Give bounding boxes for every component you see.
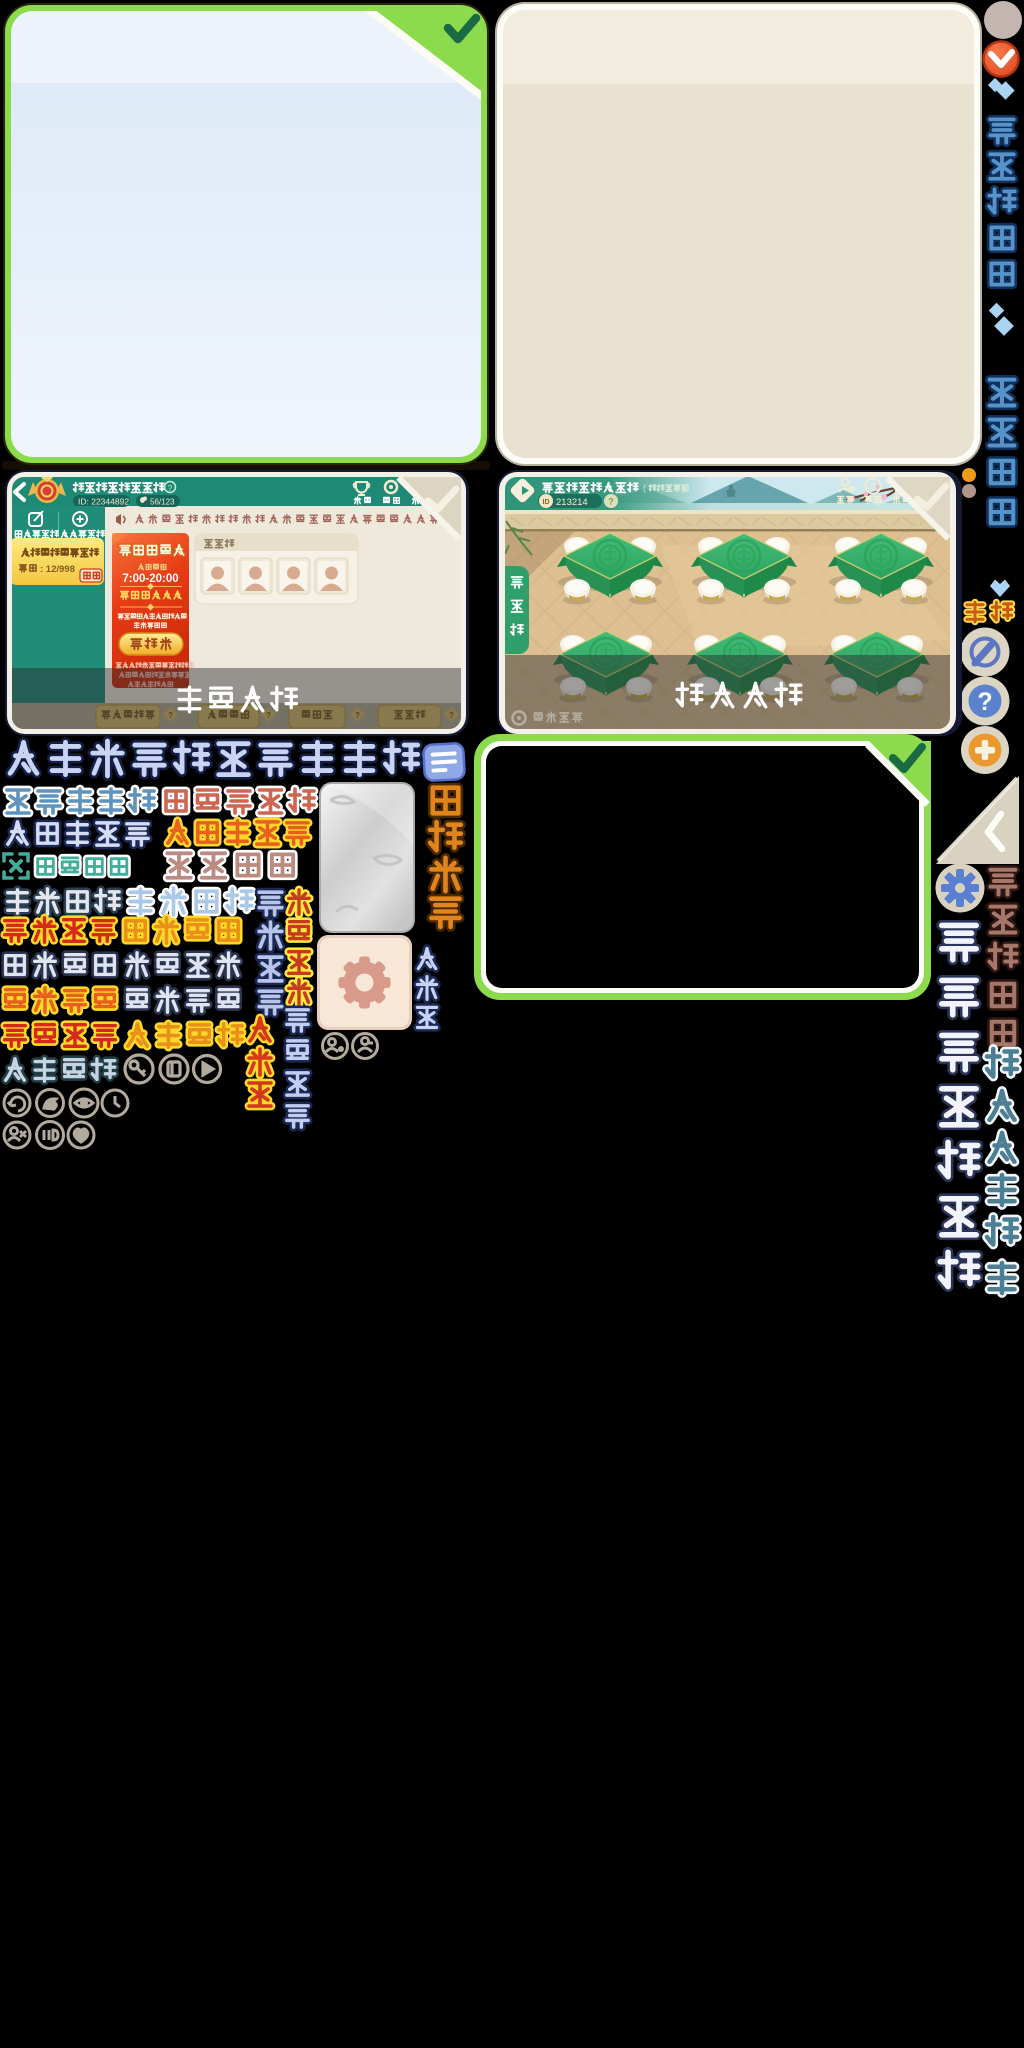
svg-text:?: ?	[977, 688, 992, 716]
svg-text:(: (	[643, 483, 646, 493]
svg-text:?: ?	[608, 497, 614, 507]
svg-text:?: ?	[870, 482, 876, 493]
svg-text:213214: 213214	[556, 497, 588, 508]
svg-text:ID: ID	[543, 499, 550, 506]
svg-text:: 12/998: : 12/998	[40, 564, 75, 575]
svg-text:ID: 22344892: ID: 22344892	[78, 497, 129, 507]
svg-text:): )	[682, 483, 685, 493]
svg-text:?: ?	[168, 484, 173, 493]
svg-text:56/123: 56/123	[150, 498, 175, 507]
